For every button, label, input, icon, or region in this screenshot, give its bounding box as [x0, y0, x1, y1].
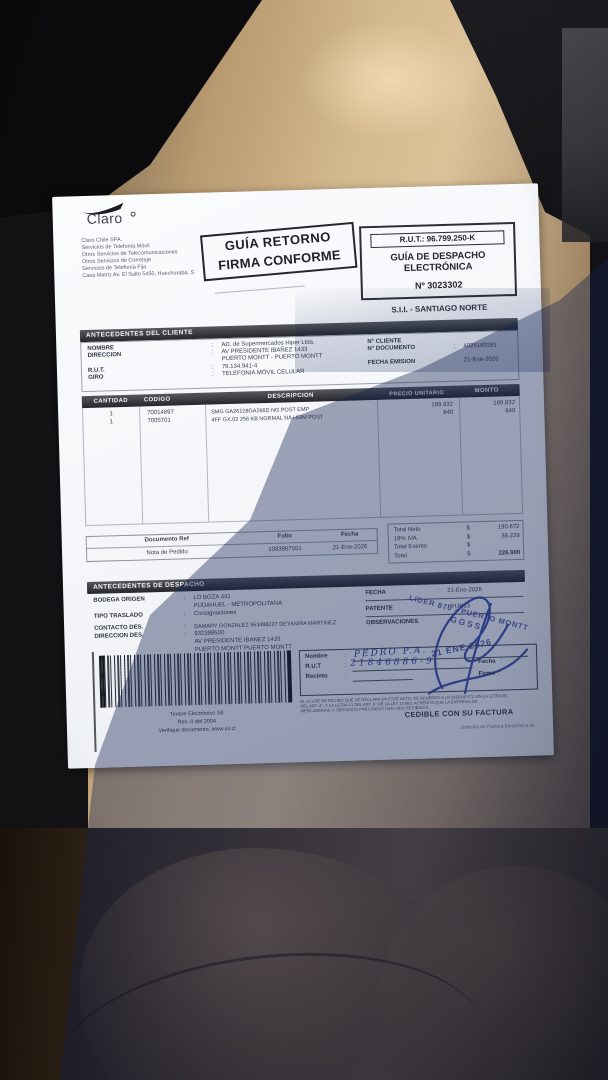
colon: :	[211, 349, 213, 356]
colon: :	[212, 364, 214, 371]
client-address-label: DIRECCION	[87, 352, 121, 360]
item-code: 7005701	[147, 418, 171, 425]
items-header-codigo: CODIGO	[144, 397, 171, 404]
colon: :	[212, 371, 214, 378]
item-qty: 1	[83, 419, 139, 427]
supplier-line: Claro Chile SPA.	[81, 237, 122, 244]
car-window-pillar	[562, 28, 608, 242]
item-code: 70014897	[147, 410, 174, 417]
claro-ring-icon	[131, 212, 136, 217]
dest-address-label: DIRECCION DES.	[94, 633, 144, 641]
origin-warehouse-label: BODEGA ORIGEN	[93, 596, 145, 604]
return-stamp: GUÍA RETORNO FIRMA CONFORME	[200, 222, 357, 282]
car-interior-photo: Claro Claro Chile SPA. Servicios de Tele…	[0, 0, 608, 1080]
contact-label: CONTACTO DES.	[94, 625, 143, 633]
client-rut-label: R.U.T.	[88, 367, 105, 374]
column-divider	[139, 407, 143, 524]
item-qty: 1	[83, 411, 139, 419]
transfer-type-label: TIPO TRASLADO	[94, 613, 143, 621]
colon: :	[211, 342, 213, 349]
partial-stamp-edge	[215, 280, 305, 294]
column-divider	[205, 405, 209, 522]
paper-fold-line	[92, 652, 97, 752]
items-header-cantidad: CANTIDAD	[84, 398, 138, 406]
brand-logo: Claro	[87, 211, 123, 227]
client-giro-label: GIRO	[88, 375, 104, 382]
client-giro-value: TELEFONIA MÓVIL CELULAR	[222, 369, 305, 378]
